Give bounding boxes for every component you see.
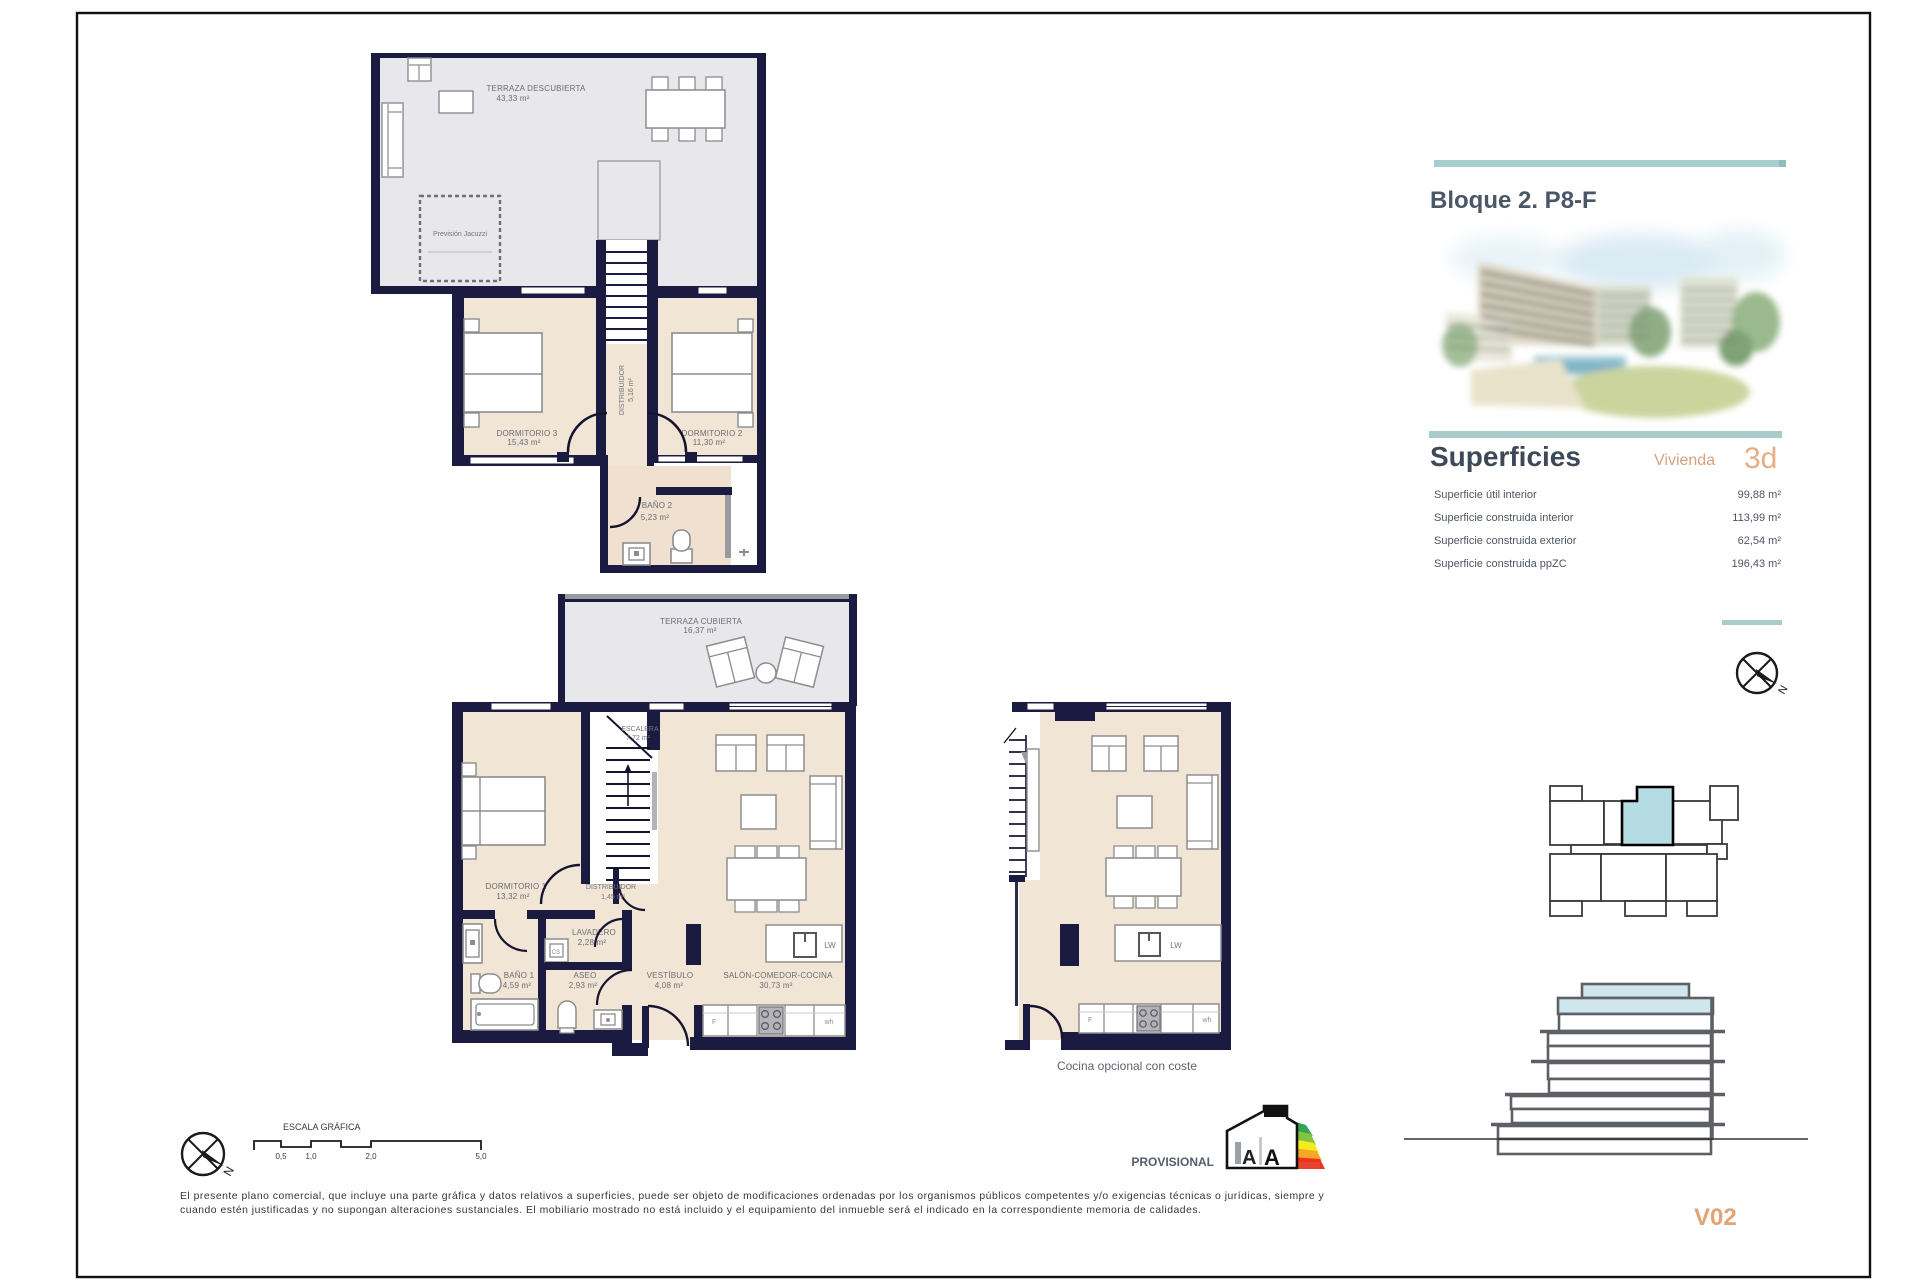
svg-text:Superficie construida interior: Superficie construida interior: [1434, 512, 1574, 524]
svg-text:5,16 m²: 5,16 m²: [628, 377, 635, 401]
svg-text:13,32 m²: 13,32 m²: [496, 892, 529, 901]
svg-text:SALÓN-COMEDOR-COCINA: SALÓN-COMEDOR-COCINA: [723, 971, 833, 980]
svg-text:wh: wh: [824, 1019, 834, 1026]
svg-text:Vivienda: Vivienda: [1654, 452, 1715, 469]
svg-text:TERRAZA DESCUBIERTA: TERRAZA DESCUBIERTA: [486, 84, 586, 93]
svg-text:F: F: [1088, 1017, 1092, 1024]
svg-text:A: A: [1242, 1147, 1256, 1169]
svg-text:CS: CS: [552, 950, 560, 956]
svg-text:0,5: 0,5: [275, 1152, 287, 1161]
svg-text:LW: LW: [1170, 941, 1182, 950]
svg-text:2,0: 2,0: [365, 1152, 377, 1161]
svg-text:Cocina opcional con coste: Cocina opcional con coste: [1057, 1059, 1197, 1073]
svg-text:43,33 m²: 43,33 m²: [496, 94, 529, 103]
svg-text:30,73 m²: 30,73 m²: [759, 981, 792, 990]
svg-text:DISTRIBUIDOR: DISTRIBUIDOR: [619, 365, 626, 415]
svg-text:DORMITORIO 1: DORMITORIO 1: [486, 882, 547, 891]
svg-text:Previsión Jacuzzi: Previsión Jacuzzi: [433, 231, 488, 238]
svg-text:Bloque 2. P8-F: Bloque 2. P8-F: [1430, 187, 1597, 214]
svg-text:DORMITORIO 3: DORMITORIO 3: [497, 429, 558, 438]
svg-text:TERRAZA CUBIERTA: TERRAZA CUBIERTA: [660, 617, 742, 626]
svg-text:Superficies: Superficies: [1430, 441, 1581, 472]
svg-text:BAÑO 2: BAÑO 2: [642, 501, 673, 510]
svg-text:5,0: 5,0: [475, 1152, 487, 1161]
svg-text:VESTÍBULO: VESTÍBULO: [647, 971, 694, 980]
svg-text:1,0: 1,0: [305, 1152, 317, 1161]
svg-text:Superficie construida ppZC: Superficie construida ppZC: [1434, 558, 1567, 570]
svg-text:99,88 m²: 99,88 m²: [1738, 489, 1782, 501]
svg-text:3d: 3d: [1744, 442, 1777, 475]
svg-text:5,23 m²: 5,23 m²: [641, 513, 670, 522]
svg-text:cuando estén justificadas y no: cuando estén justificadas y no supongan …: [180, 1205, 1201, 1216]
svg-text:16,37 m²: 16,37 m²: [683, 626, 716, 635]
svg-text:62,54 m²: 62,54 m²: [1738, 535, 1782, 547]
svg-text:11,30 m²: 11,30 m²: [693, 438, 726, 447]
svg-text:El presente plano comercial, q: El presente plano comercial, que incluye…: [180, 1191, 1325, 1202]
svg-text:1,45 m²: 1,45 m²: [601, 894, 625, 901]
svg-text:ASEO: ASEO: [573, 971, 596, 980]
svg-text:196,43 m²: 196,43 m²: [1731, 558, 1781, 570]
svg-text:ESCALERA: ESCALERA: [621, 726, 659, 733]
svg-text:F: F: [712, 1019, 716, 1026]
svg-text:DORMITORIO 2: DORMITORIO 2: [682, 429, 743, 438]
svg-text:Superficie útil interior: Superficie útil interior: [1434, 489, 1537, 501]
svg-text:LAVADERO: LAVADERO: [572, 928, 616, 937]
svg-text:PROVISIONAL: PROVISIONAL: [1131, 1155, 1214, 1169]
svg-text:wh: wh: [1202, 1017, 1212, 1024]
svg-text:15,43 m²: 15,43 m²: [507, 438, 540, 447]
svg-text:113,99 m²: 113,99 m²: [1732, 512, 1781, 524]
svg-text:Superficie construida exterior: Superficie construida exterior: [1434, 535, 1577, 547]
svg-text:4,59 m²: 4,59 m²: [503, 981, 532, 990]
svg-text:V02: V02: [1694, 1204, 1737, 1231]
svg-text:4,08 m²: 4,08 m²: [655, 981, 684, 990]
svg-text:DISTRIBUIDOR: DISTRIBUIDOR: [586, 884, 636, 891]
svg-text:2,93 m²: 2,93 m²: [569, 981, 598, 990]
svg-text:7,72 m²: 7,72 m²: [626, 735, 650, 742]
svg-text:A: A: [1264, 1145, 1280, 1170]
svg-text:LW: LW: [824, 941, 836, 950]
svg-text:ESCALA GRÁFICA: ESCALA GRÁFICA: [283, 1122, 361, 1132]
svg-text:BAÑO 1: BAÑO 1: [504, 971, 535, 980]
svg-text:2,28 m²: 2,28 m²: [578, 938, 607, 947]
